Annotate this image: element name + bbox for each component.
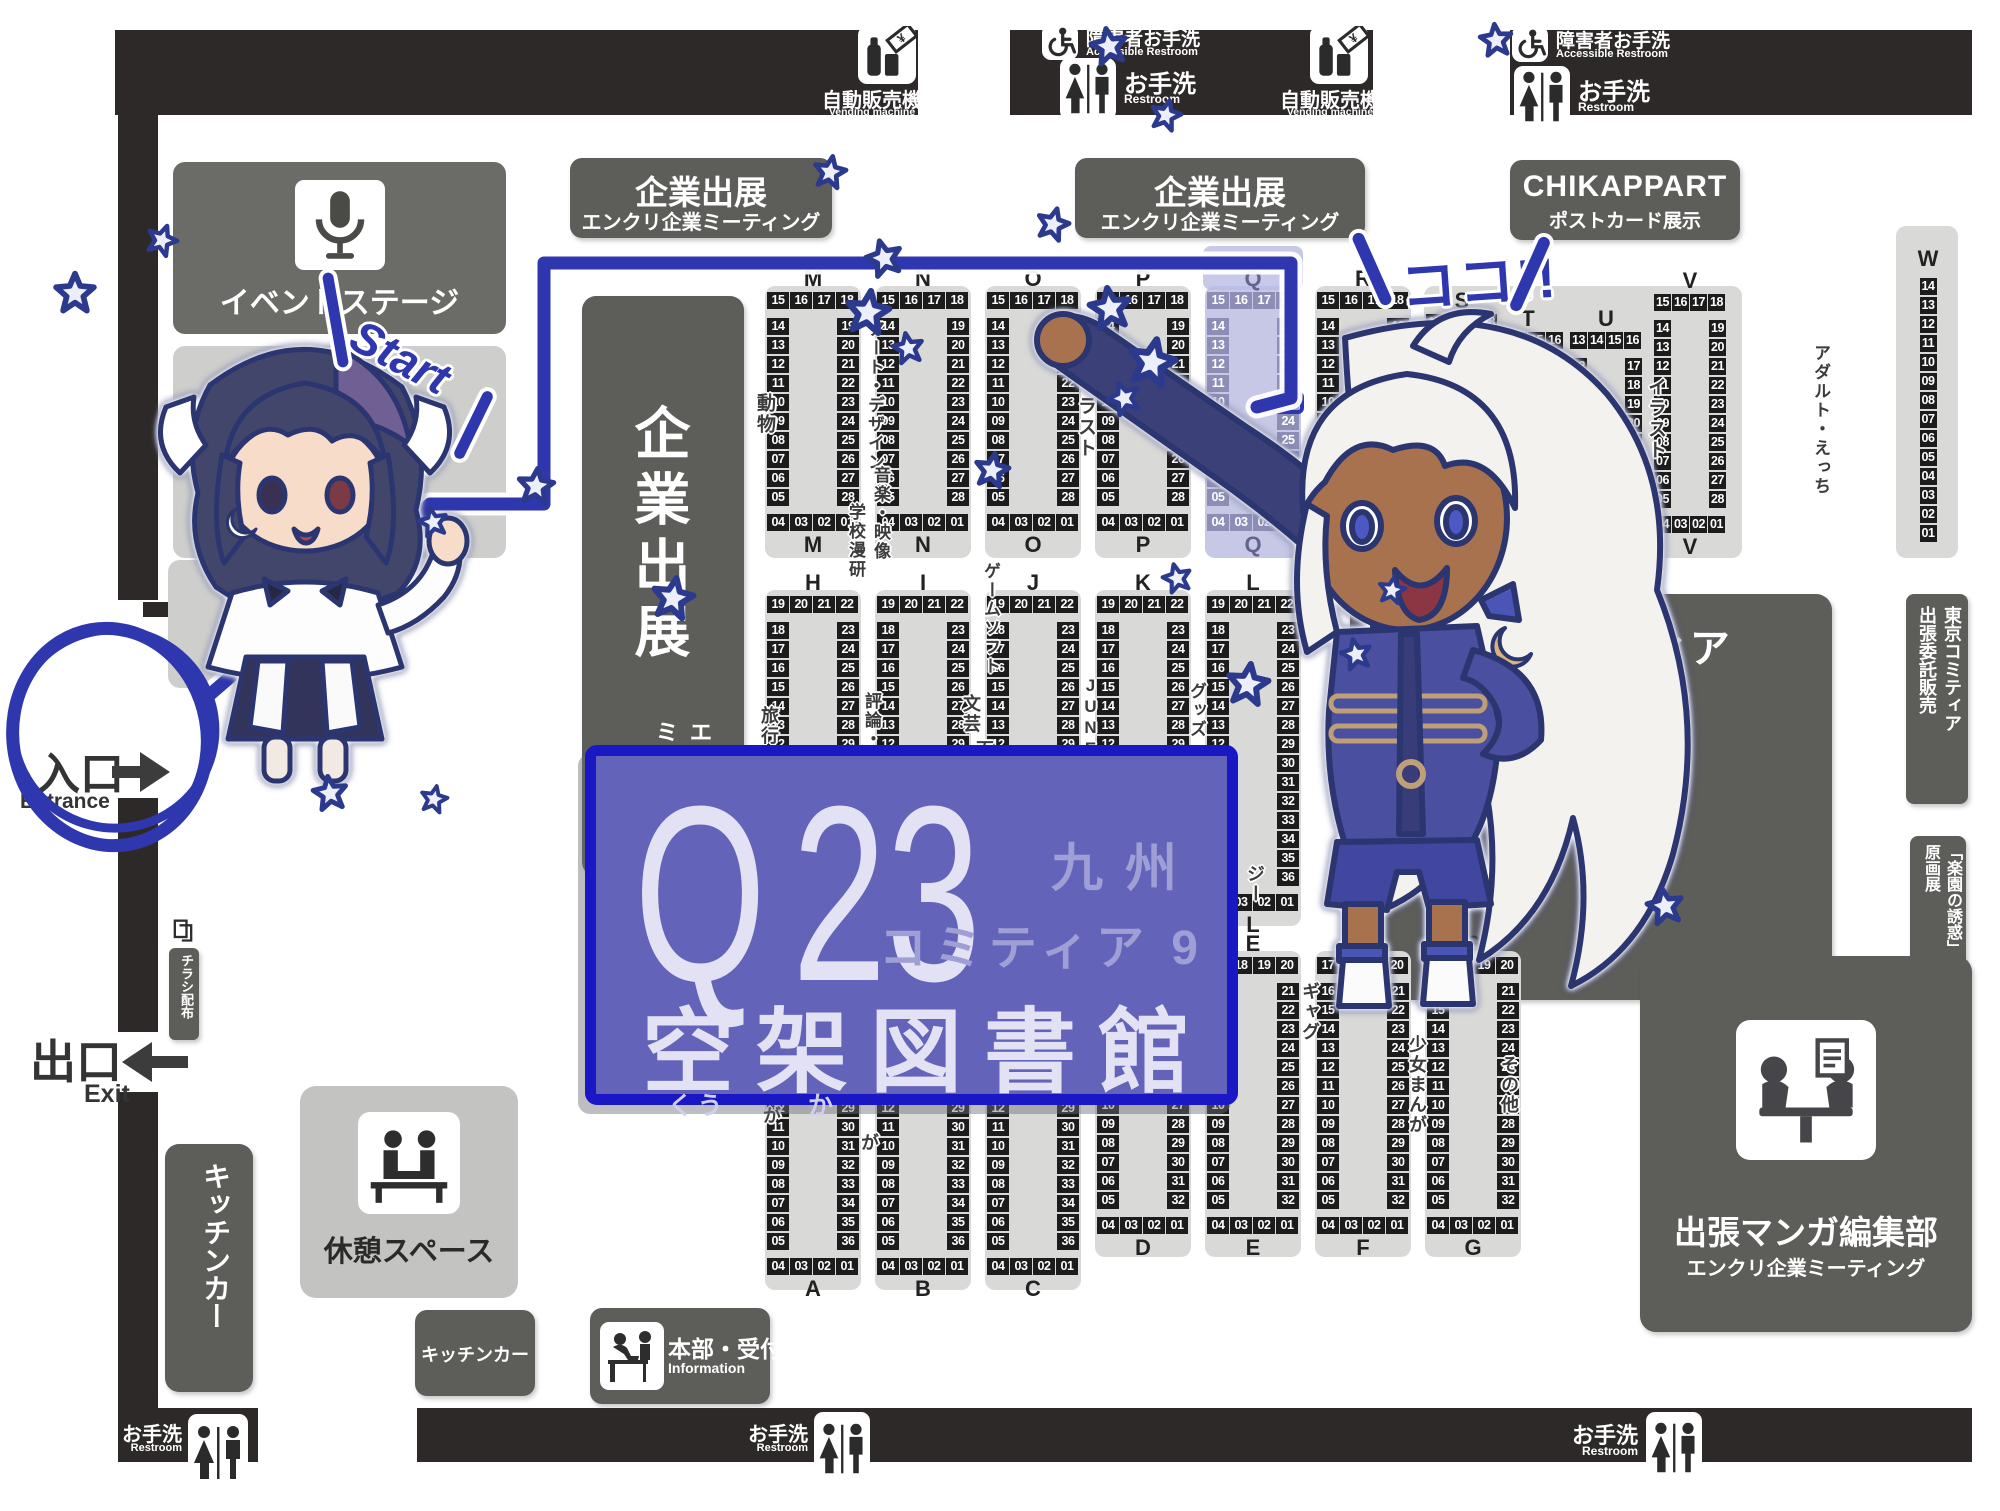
venue-map: ¥ 自動販売機 Vending machine 障害者お手洗 Accessibl… [0, 0, 2000, 1511]
exit-arrow-icon [122, 1042, 188, 1082]
banner-furigana-1: くう [668, 1086, 728, 1122]
banner-event-line1: 九州 [1051, 826, 1199, 901]
banner-block-letter: Q [634, 786, 766, 1001]
booth-banner: Q 23 九州 コミティア 9 空架図書館 くう か [585, 745, 1238, 1105]
banner-furigana-2: か [808, 1086, 838, 1122]
banner-event-line2: コミティア 9 [879, 908, 1205, 978]
